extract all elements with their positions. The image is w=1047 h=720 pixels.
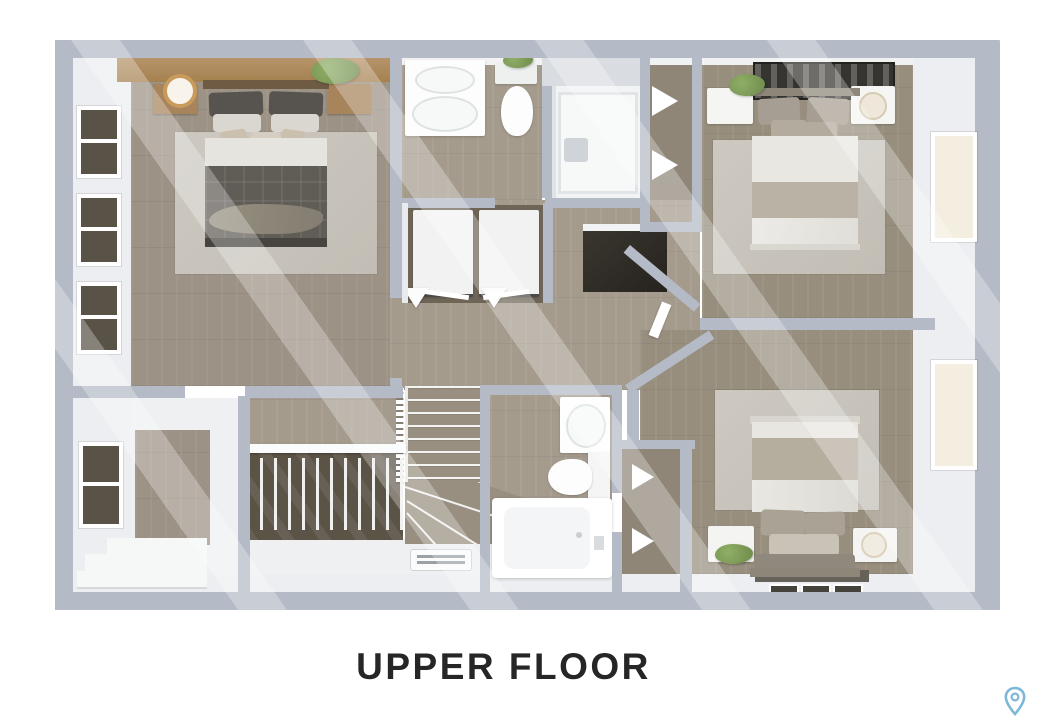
shower [552, 86, 642, 198]
tub-basin [504, 507, 590, 569]
toilet [548, 452, 610, 500]
bathroom-2-wall [612, 532, 622, 592]
pendant-lamp [163, 74, 197, 108]
bathroom-2-wall [612, 385, 622, 493]
bedroom-3-bed [750, 416, 860, 582]
map-pin-icon [1003, 686, 1027, 716]
step [77, 571, 207, 589]
vanity-sink [560, 397, 610, 453]
lower-landing-floor [246, 536, 403, 574]
bathtub [492, 498, 612, 578]
landing-room-wood-patch [135, 430, 210, 545]
map-pin-center [1012, 694, 1019, 701]
closet-shelf [632, 528, 654, 554]
window [79, 442, 123, 528]
stairwell-balusters [246, 458, 403, 530]
floor-plan-render [55, 40, 1000, 610]
bed-foot-rail [205, 238, 327, 247]
toilet-bowl [548, 459, 592, 495]
duvet [752, 480, 858, 512]
pillow [806, 97, 849, 125]
blanket-band [752, 438, 858, 482]
interior-wall [390, 58, 402, 298]
stairs-upper-flight [405, 386, 484, 482]
bathroom-2-wall [480, 385, 490, 592]
interior-wall [545, 198, 645, 208]
tub-drain [576, 532, 582, 538]
sink-basin [412, 96, 478, 132]
linen-closet-wall [680, 440, 692, 592]
vent-slit [417, 561, 465, 564]
exterior-wall-bottom [55, 592, 1000, 610]
washer [413, 210, 473, 297]
interior-wall [245, 386, 403, 398]
pillow [805, 511, 846, 536]
window [77, 106, 121, 178]
closet-wall [640, 222, 702, 232]
shower-glass [552, 86, 556, 198]
vanity-sink [405, 60, 485, 136]
window-rail [81, 315, 117, 319]
nightstand [327, 84, 371, 114]
exterior-wall-top [55, 40, 1000, 58]
laundry-wall-face [402, 203, 408, 303]
sink-basin [566, 404, 606, 448]
dark-closet-opening [583, 230, 667, 292]
blanket-band [752, 182, 858, 222]
window [77, 194, 121, 266]
window [931, 132, 977, 242]
bedroom-2-bed [750, 88, 860, 250]
landing-room-wall [238, 396, 250, 592]
toilet-bowl [501, 86, 533, 136]
closet-wall [640, 58, 650, 232]
exterior-wall-left [55, 40, 73, 610]
closet-shelf [652, 150, 678, 180]
window [77, 282, 121, 354]
page: UPPER FLOOR [0, 0, 1047, 720]
shower-fixture [564, 138, 588, 162]
bathroom-2-wall [480, 385, 622, 395]
vent-slit [417, 555, 465, 558]
interior-wall [73, 386, 185, 398]
stair-landing-floor [246, 398, 403, 446]
window-rail [83, 482, 119, 486]
bulkhead [542, 58, 642, 86]
floor-title: UPPER FLOOR [0, 646, 1007, 688]
closet-shelf [652, 86, 678, 116]
table-lamp [861, 532, 887, 558]
stairwell-handrail [243, 444, 406, 453]
closet-wall [692, 58, 702, 232]
table-lamp [859, 92, 887, 120]
floor-vent [411, 550, 471, 570]
headboard [750, 568, 860, 577]
throw-blanket [209, 204, 323, 234]
headboard [750, 88, 860, 96]
pillow [769, 534, 807, 556]
laundry-wall [543, 203, 553, 303]
headboard [203, 80, 329, 89]
exterior-wall-right [975, 40, 1000, 610]
pillow [803, 534, 839, 556]
dryer [479, 210, 539, 297]
bed-foot-rail [750, 244, 860, 250]
window [931, 360, 977, 470]
bed-sheet [752, 218, 858, 244]
master-bed [203, 80, 329, 248]
window-rail [81, 139, 117, 143]
closet-shelf [632, 464, 654, 490]
toilet [495, 52, 539, 138]
duvet [752, 136, 858, 188]
corridor-wall [700, 318, 935, 330]
closet-interior [650, 58, 692, 222]
window-rail [81, 227, 117, 231]
pillow [761, 509, 806, 537]
interior-wall [627, 390, 639, 445]
sink-basin [415, 66, 475, 94]
tub-faucet [594, 536, 604, 550]
steps-down [77, 536, 209, 588]
interior-wall [542, 86, 552, 198]
